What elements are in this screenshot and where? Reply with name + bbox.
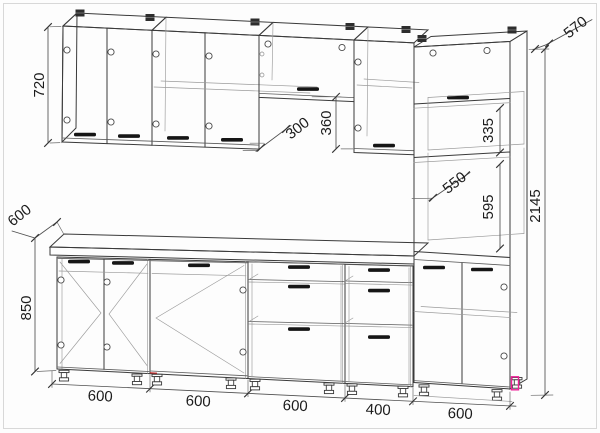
drawing-canvas: 720 600 850 300 360 335 550 — [0, 0, 600, 433]
dim-label-tall-height: 2145 — [527, 189, 544, 222]
drawer-handle — [368, 289, 390, 293]
shelf-pin — [260, 73, 264, 77]
dim-label-base-height: 850 — [18, 295, 35, 320]
mounting-bracket-icon — [346, 23, 355, 30]
dim-label-tall-depth: 570 — [561, 13, 591, 42]
hinge-circle — [355, 59, 361, 65]
dim-label-niche-depth: 550 — [440, 169, 470, 198]
adjustable-foot — [59, 370, 69, 381]
tall-unit — [414, 27, 527, 402]
dimension-335: 335 — [480, 104, 504, 156]
mounting-bracket-icon — [402, 26, 411, 33]
dim-label-wall-height: 720 — [31, 72, 48, 97]
adjustable-foot — [347, 384, 357, 395]
hinge-circle — [58, 277, 64, 283]
hinge-circle — [339, 44, 345, 50]
drawer-handle — [288, 285, 310, 289]
hinge-circle — [153, 121, 159, 127]
wall-cabinet-3-flip-up — [251, 19, 369, 102]
drawer-handle — [288, 327, 310, 331]
wall-cabinet-4 — [346, 23, 429, 155]
shelf-pin — [260, 52, 264, 56]
mounting-bracket-icon — [251, 19, 260, 26]
hinge-circle — [64, 47, 70, 53]
door-handle — [74, 133, 96, 137]
base-unit-1 — [58, 258, 149, 384]
dim-label-width-2: 600 — [185, 392, 211, 410]
door-handle — [118, 134, 140, 138]
door-handle — [297, 87, 319, 91]
dim-label-niche-335: 335 — [480, 118, 497, 143]
base-unit-4-drawers — [346, 265, 412, 397]
dimension-360: 360 — [312, 93, 353, 153]
wall-cabinet-1 — [62, 10, 166, 146]
dimension-720: 720 — [31, 23, 61, 147]
hinge-circle — [108, 119, 114, 125]
hinge-circle — [104, 344, 110, 350]
door-handle — [167, 136, 189, 140]
dimension-base-widths: 600 600 600 400 600 — [48, 371, 516, 423]
hinge-circle — [206, 53, 212, 59]
hinge-circle — [108, 49, 114, 55]
hinge-circle — [58, 342, 64, 348]
adjustable-foot — [398, 386, 408, 397]
page-border — [4, 4, 597, 429]
door-handle — [471, 268, 493, 272]
hinge-circle — [355, 125, 361, 131]
dim-label-wall-depth: 300 — [283, 114, 313, 143]
mounting-bracket-icon — [146, 14, 155, 21]
dim-label-width-4: 400 — [365, 401, 391, 419]
adjustable-foot — [492, 390, 502, 401]
dimension-300: 300 — [243, 114, 313, 151]
dim-label-width-5: 600 — [447, 405, 473, 423]
drawer-handle — [368, 268, 390, 272]
base-unit-2 — [151, 261, 247, 389]
adjustable-foot — [250, 379, 260, 390]
dimension-2145: 2145 — [527, 45, 553, 399]
adjustable-foot — [226, 378, 236, 389]
hinge-circle — [64, 117, 70, 123]
dim-label-width-1: 600 — [87, 387, 113, 405]
hinge-circle — [206, 123, 212, 129]
mounting-bracket-icon — [508, 27, 517, 34]
door-handle — [373, 144, 395, 148]
adjustable-foot — [152, 374, 162, 385]
dim-label-width-3: 600 — [282, 397, 308, 415]
dimension-595: 595 — [480, 160, 504, 252]
base-unit-3-drawers — [249, 262, 353, 394]
door-handle — [221, 138, 243, 142]
dim-label-wall-gap: 360 — [318, 110, 335, 135]
hinge-circle — [430, 50, 436, 56]
dimension-570: 570 — [531, 13, 592, 53]
adjustable-foot — [324, 383, 334, 394]
kitchen-technical-drawing: 720 600 850 300 360 335 550 — [0, 0, 600, 433]
hinge-circle — [104, 279, 110, 285]
dim-label-counter-depth: 600 — [5, 201, 35, 230]
hinge-circle — [240, 287, 246, 293]
hinge-circle — [501, 284, 507, 290]
dimension-850: 850 — [18, 238, 56, 375]
adjustable-foot — [419, 385, 429, 396]
adjustable-foot — [132, 374, 142, 385]
hinge-circle — [501, 353, 507, 359]
mounting-bracket-icon — [418, 35, 427, 42]
dimension-600-depth: 600 — [5, 201, 64, 242]
door-handle — [68, 260, 90, 264]
hinge-circle — [484, 47, 490, 53]
hinge-circle — [153, 51, 159, 57]
drawer-handle — [288, 265, 310, 269]
hinge-circle — [240, 349, 246, 355]
drawer-handle — [368, 335, 390, 339]
mounting-bracket-icon — [76, 10, 85, 17]
hinge-circle — [265, 41, 271, 47]
dimension-550: 550 — [412, 169, 470, 202]
door-handle — [112, 261, 134, 265]
door-handle — [423, 266, 445, 270]
dim-label-oven-niche: 595 — [480, 194, 497, 219]
door-handle — [188, 264, 210, 268]
